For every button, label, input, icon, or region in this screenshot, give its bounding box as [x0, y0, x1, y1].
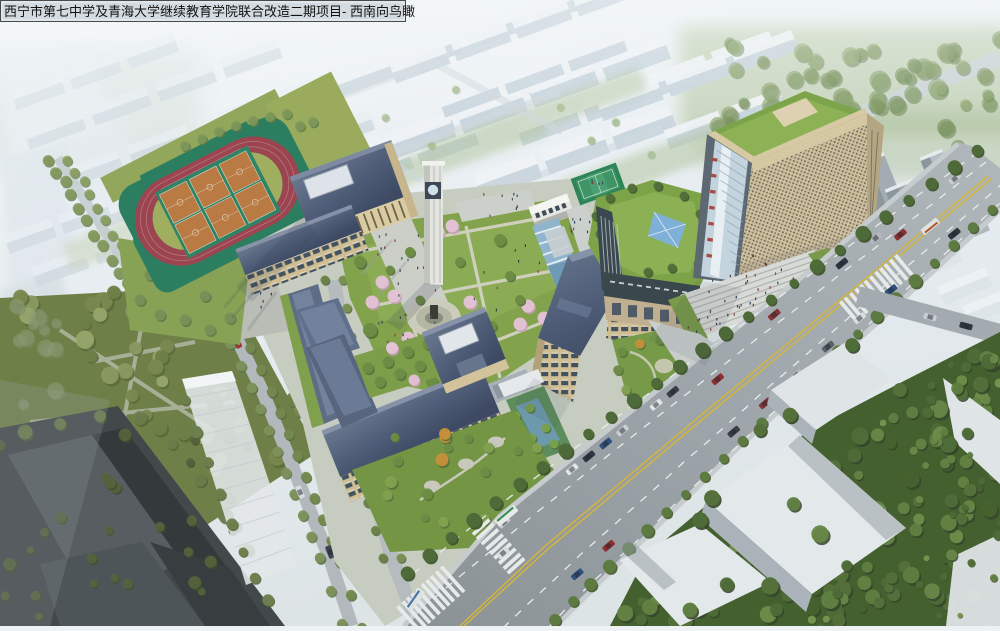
svg-text:西宁市第七中学及青海大学继续教育学院联合改造二期项目- 西南: 西宁市第七中学及青海大学继续教育学院联合改造二期项目- 西南向鸟瞰 [4, 4, 415, 19]
